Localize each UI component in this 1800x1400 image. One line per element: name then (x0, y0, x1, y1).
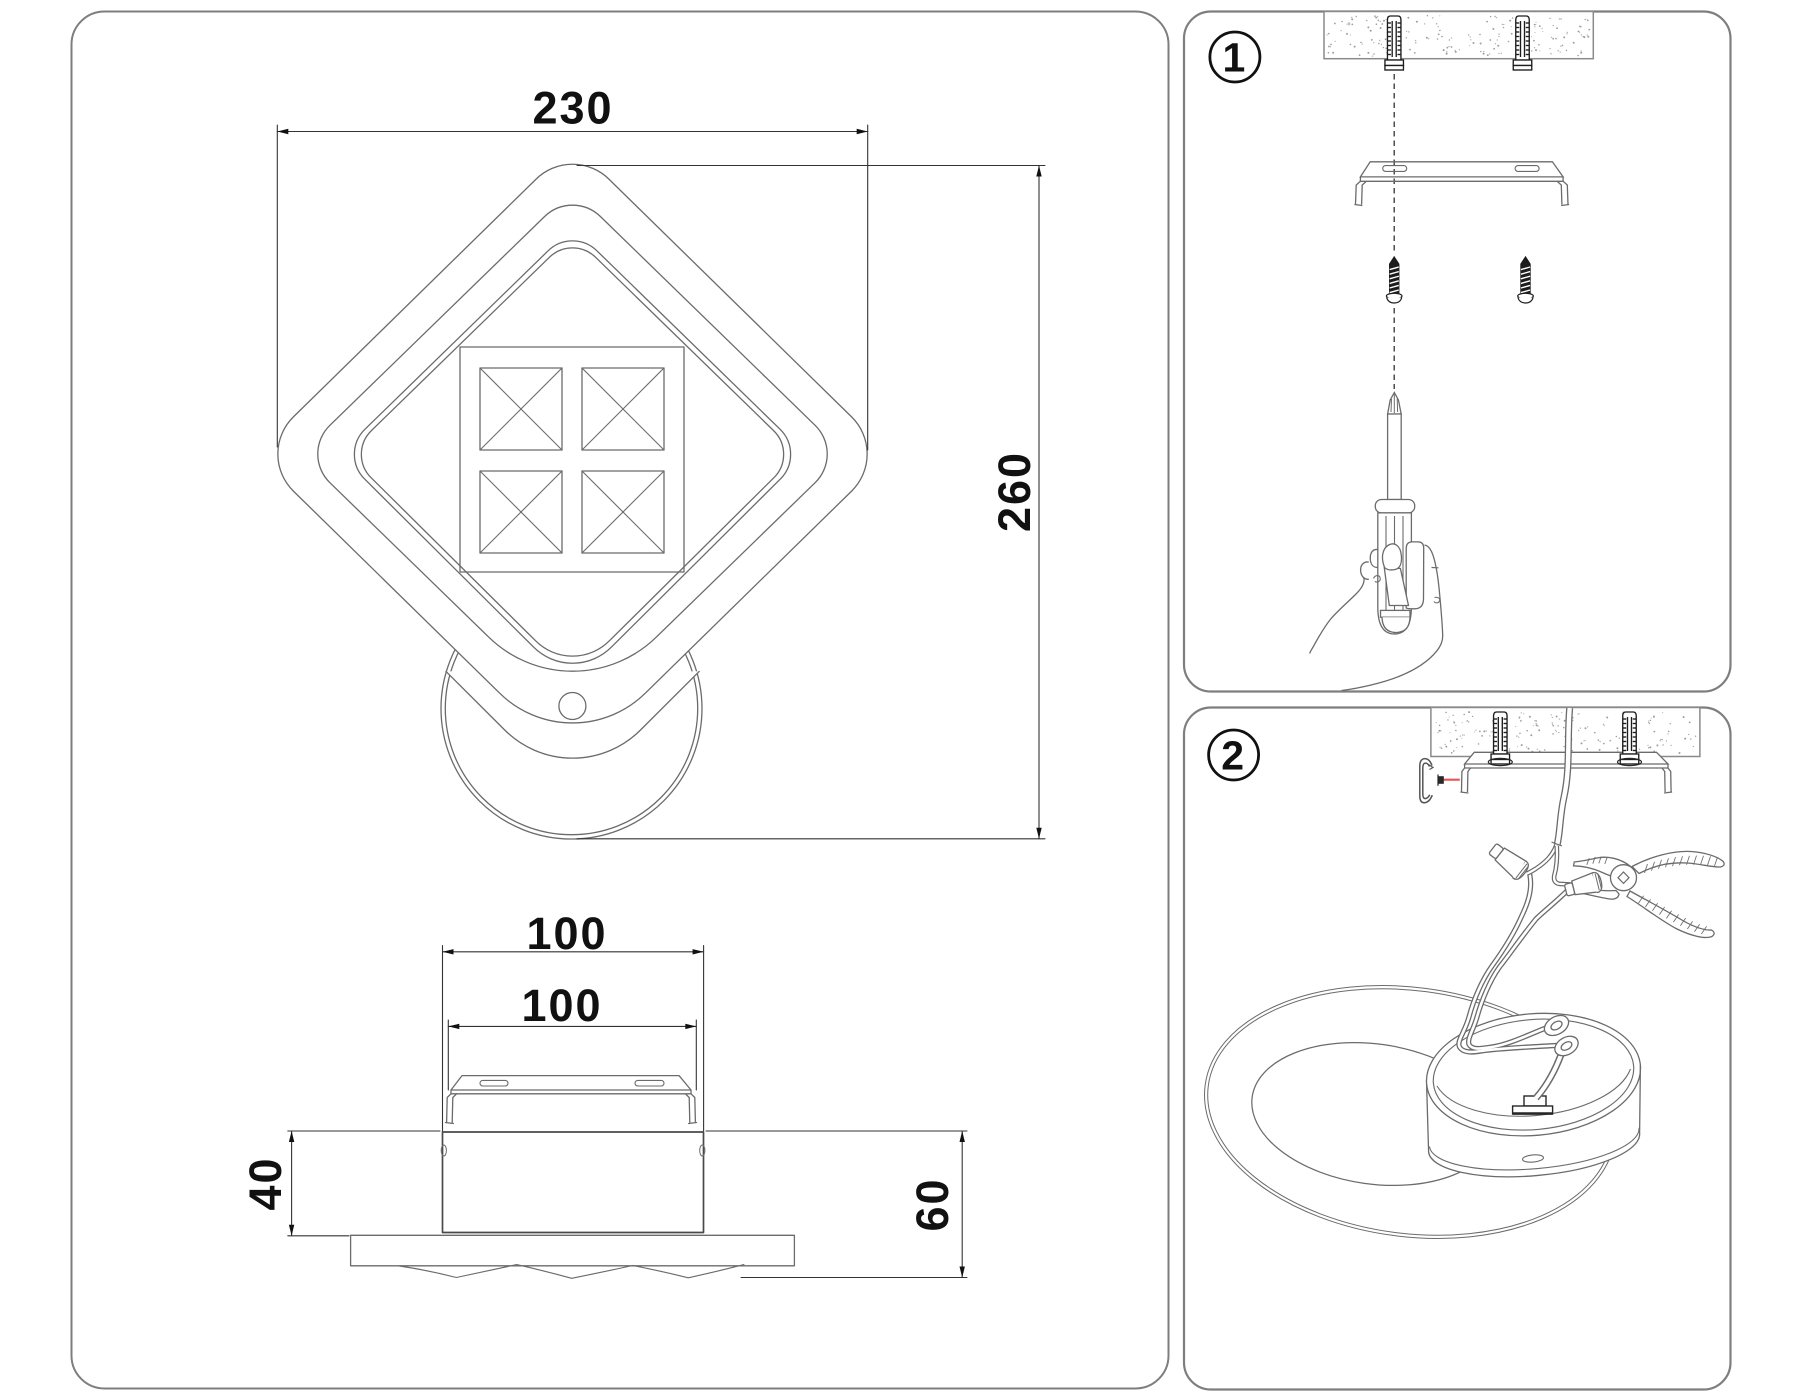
svg-text:40: 40 (240, 1156, 291, 1210)
svg-text:1: 1 (1222, 35, 1247, 81)
svg-text:260: 260 (989, 451, 1040, 532)
svg-text:100: 100 (521, 980, 602, 1031)
svg-text:60: 60 (907, 1177, 958, 1231)
svg-text:2: 2 (1221, 733, 1246, 779)
svg-text:100: 100 (526, 908, 607, 959)
svg-text:230: 230 (532, 83, 613, 134)
